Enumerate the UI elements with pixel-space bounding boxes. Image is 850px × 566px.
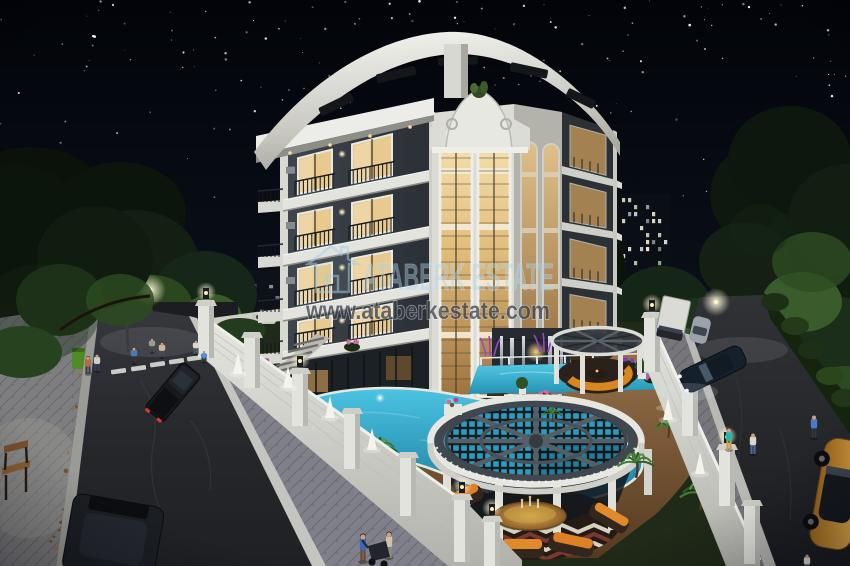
architectural-render: ATABERK ESTATE www.ataberkestate.com <box>0 0 850 566</box>
watermark-url-text: www.ataberkestate.com <box>305 297 550 325</box>
night-render-scene: ATABERK ESTATE www.ataberkestate.com <box>0 0 850 566</box>
watermark: ATABERK ESTATE www.ataberkestate.com <box>305 246 554 325</box>
watermark-brand-text: ATABERK ESTATE <box>362 257 554 299</box>
